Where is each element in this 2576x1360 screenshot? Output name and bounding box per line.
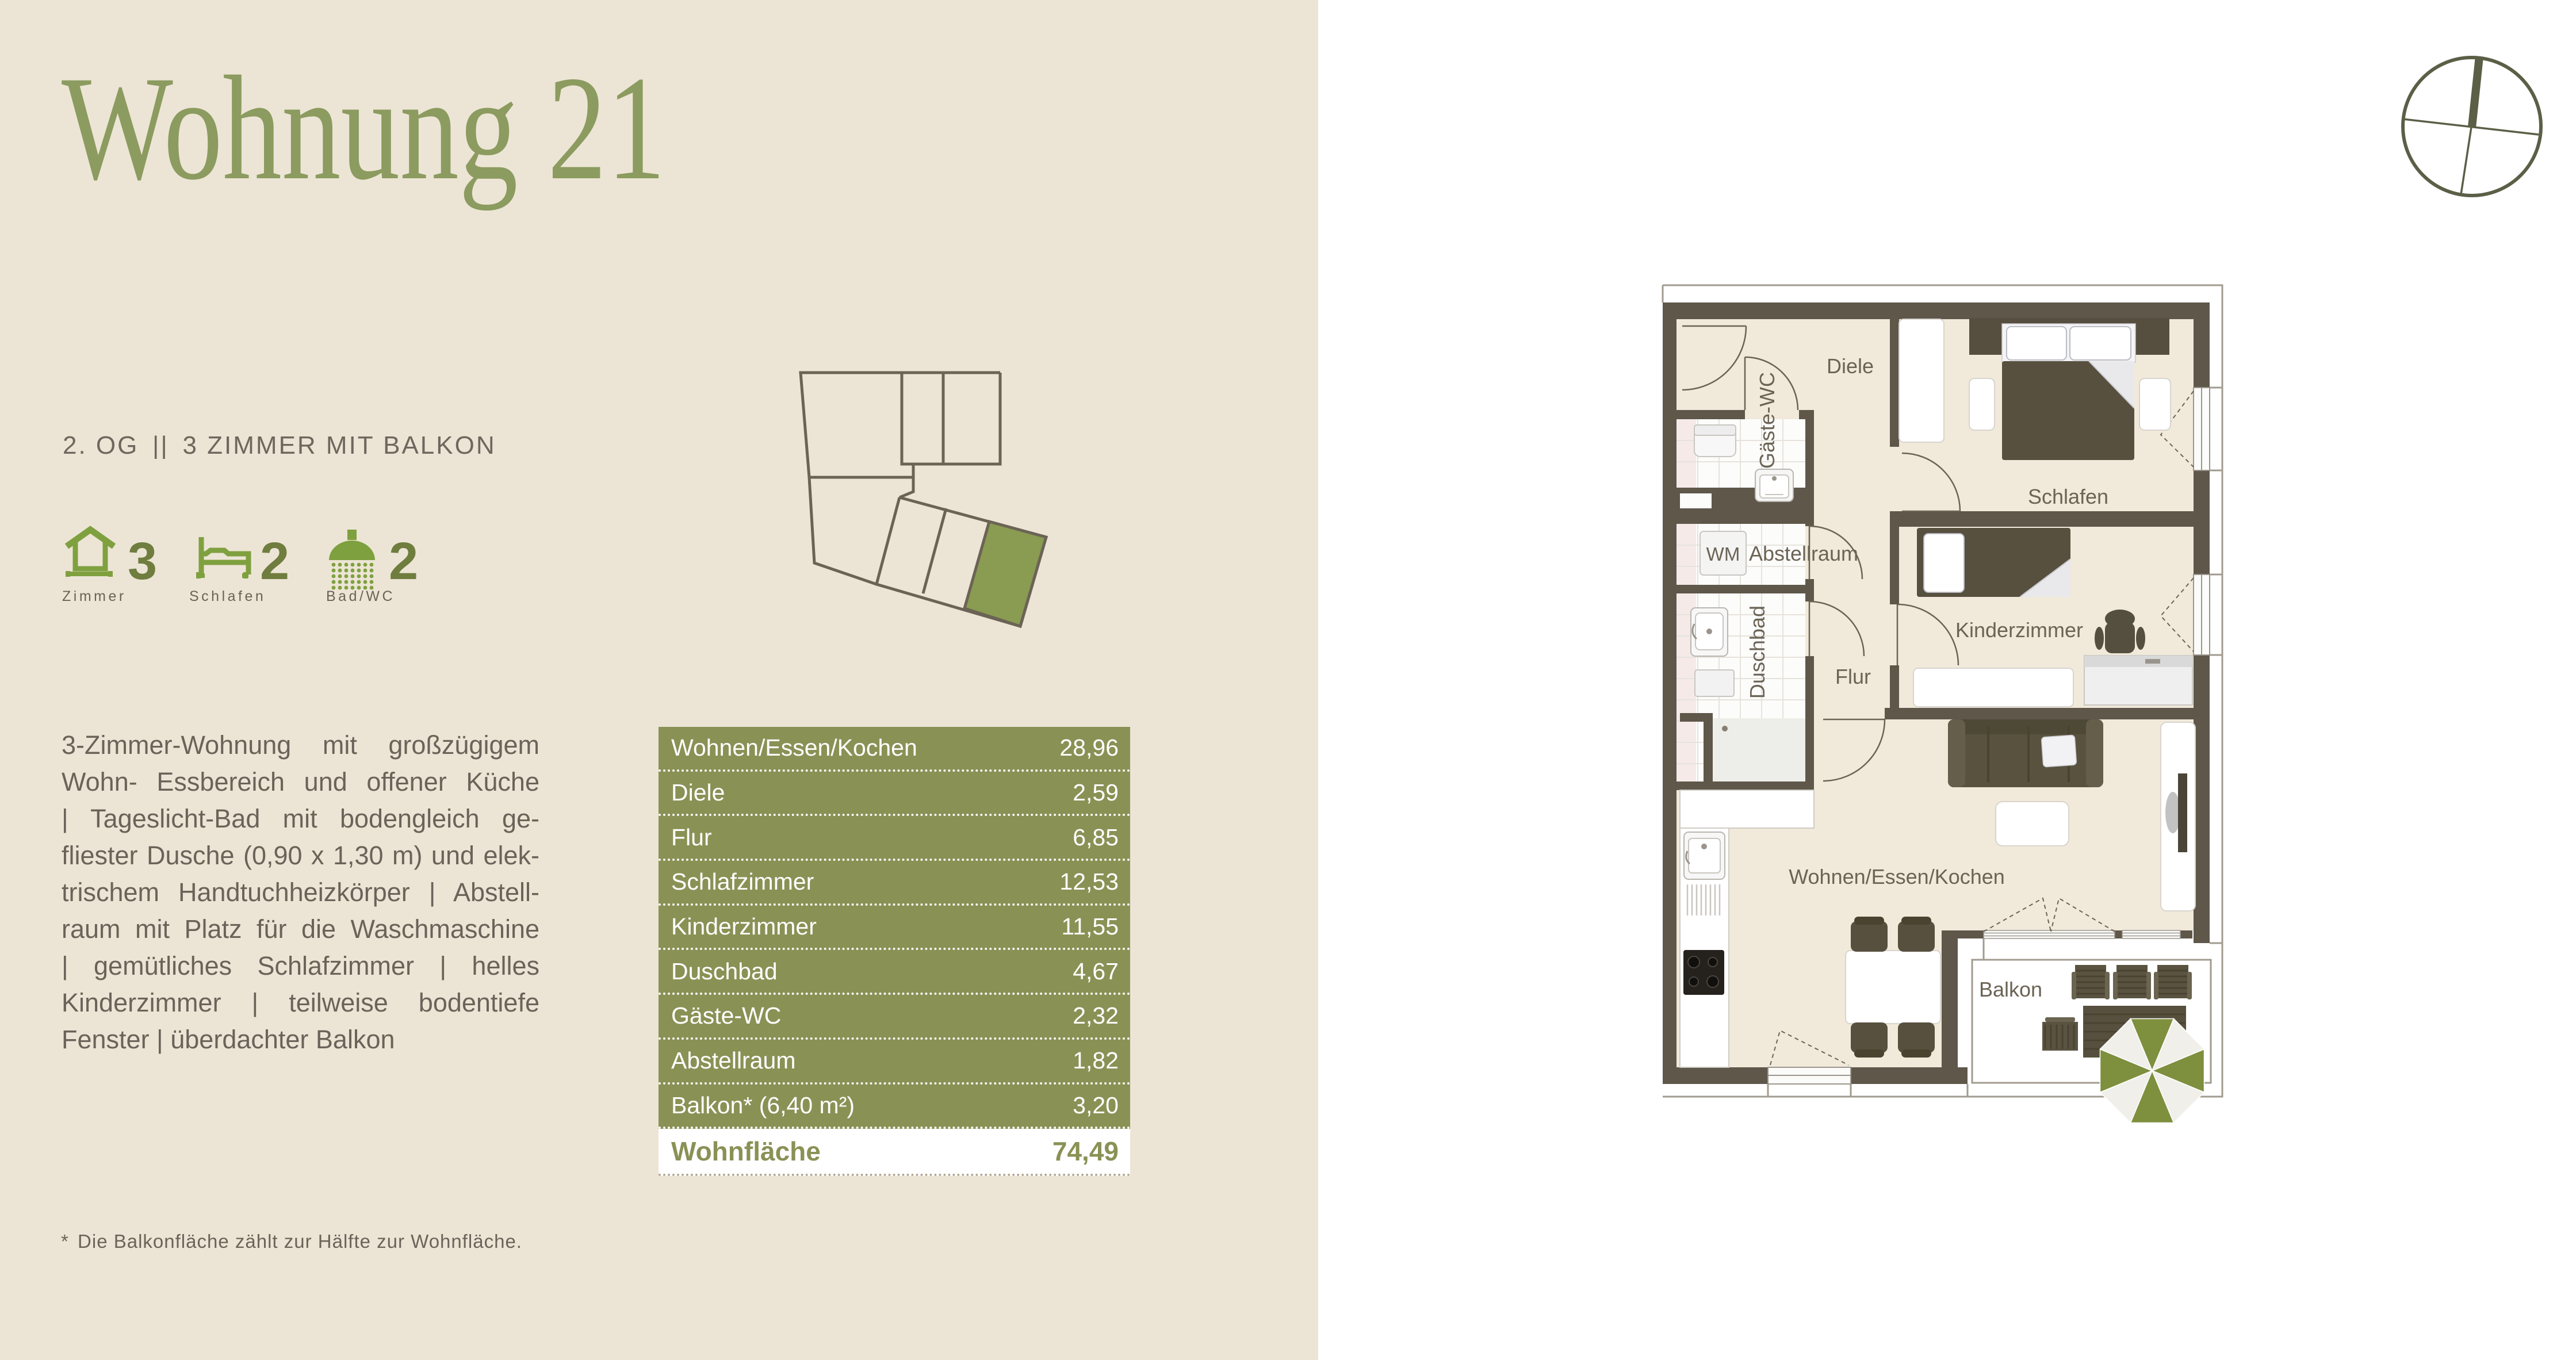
svg-text:2: 2: [260, 532, 289, 591]
svg-text:Gäste-WC: Gäste-WC: [1755, 372, 1779, 469]
svg-text:Diele: Diele: [1827, 354, 1874, 378]
svg-text:Abstellraum: Abstellraum: [1749, 542, 1858, 565]
svg-text:Schlafen: Schlafen: [2028, 485, 2108, 508]
svg-text:WM: WM: [1706, 543, 1740, 565]
svg-text:Flur: Flur: [1835, 665, 1871, 688]
svg-text:Zimmer: Zimmer: [62, 588, 127, 604]
svg-text:Wohnen/Essen/Kochen: Wohnen/Essen/Kochen: [1789, 865, 2005, 888]
svg-text:Schlafen: Schlafen: [189, 588, 266, 604]
svg-text:Balkon: Balkon: [1979, 978, 2042, 1001]
svg-text:Duschbad: Duschbad: [1746, 606, 1769, 699]
svg-text:3: 3: [128, 532, 157, 591]
svg-text:Bad/WC: Bad/WC: [326, 588, 395, 604]
svg-text:Kinderzimmer: Kinderzimmer: [1955, 618, 2083, 642]
svg-text:2: 2: [389, 532, 418, 591]
